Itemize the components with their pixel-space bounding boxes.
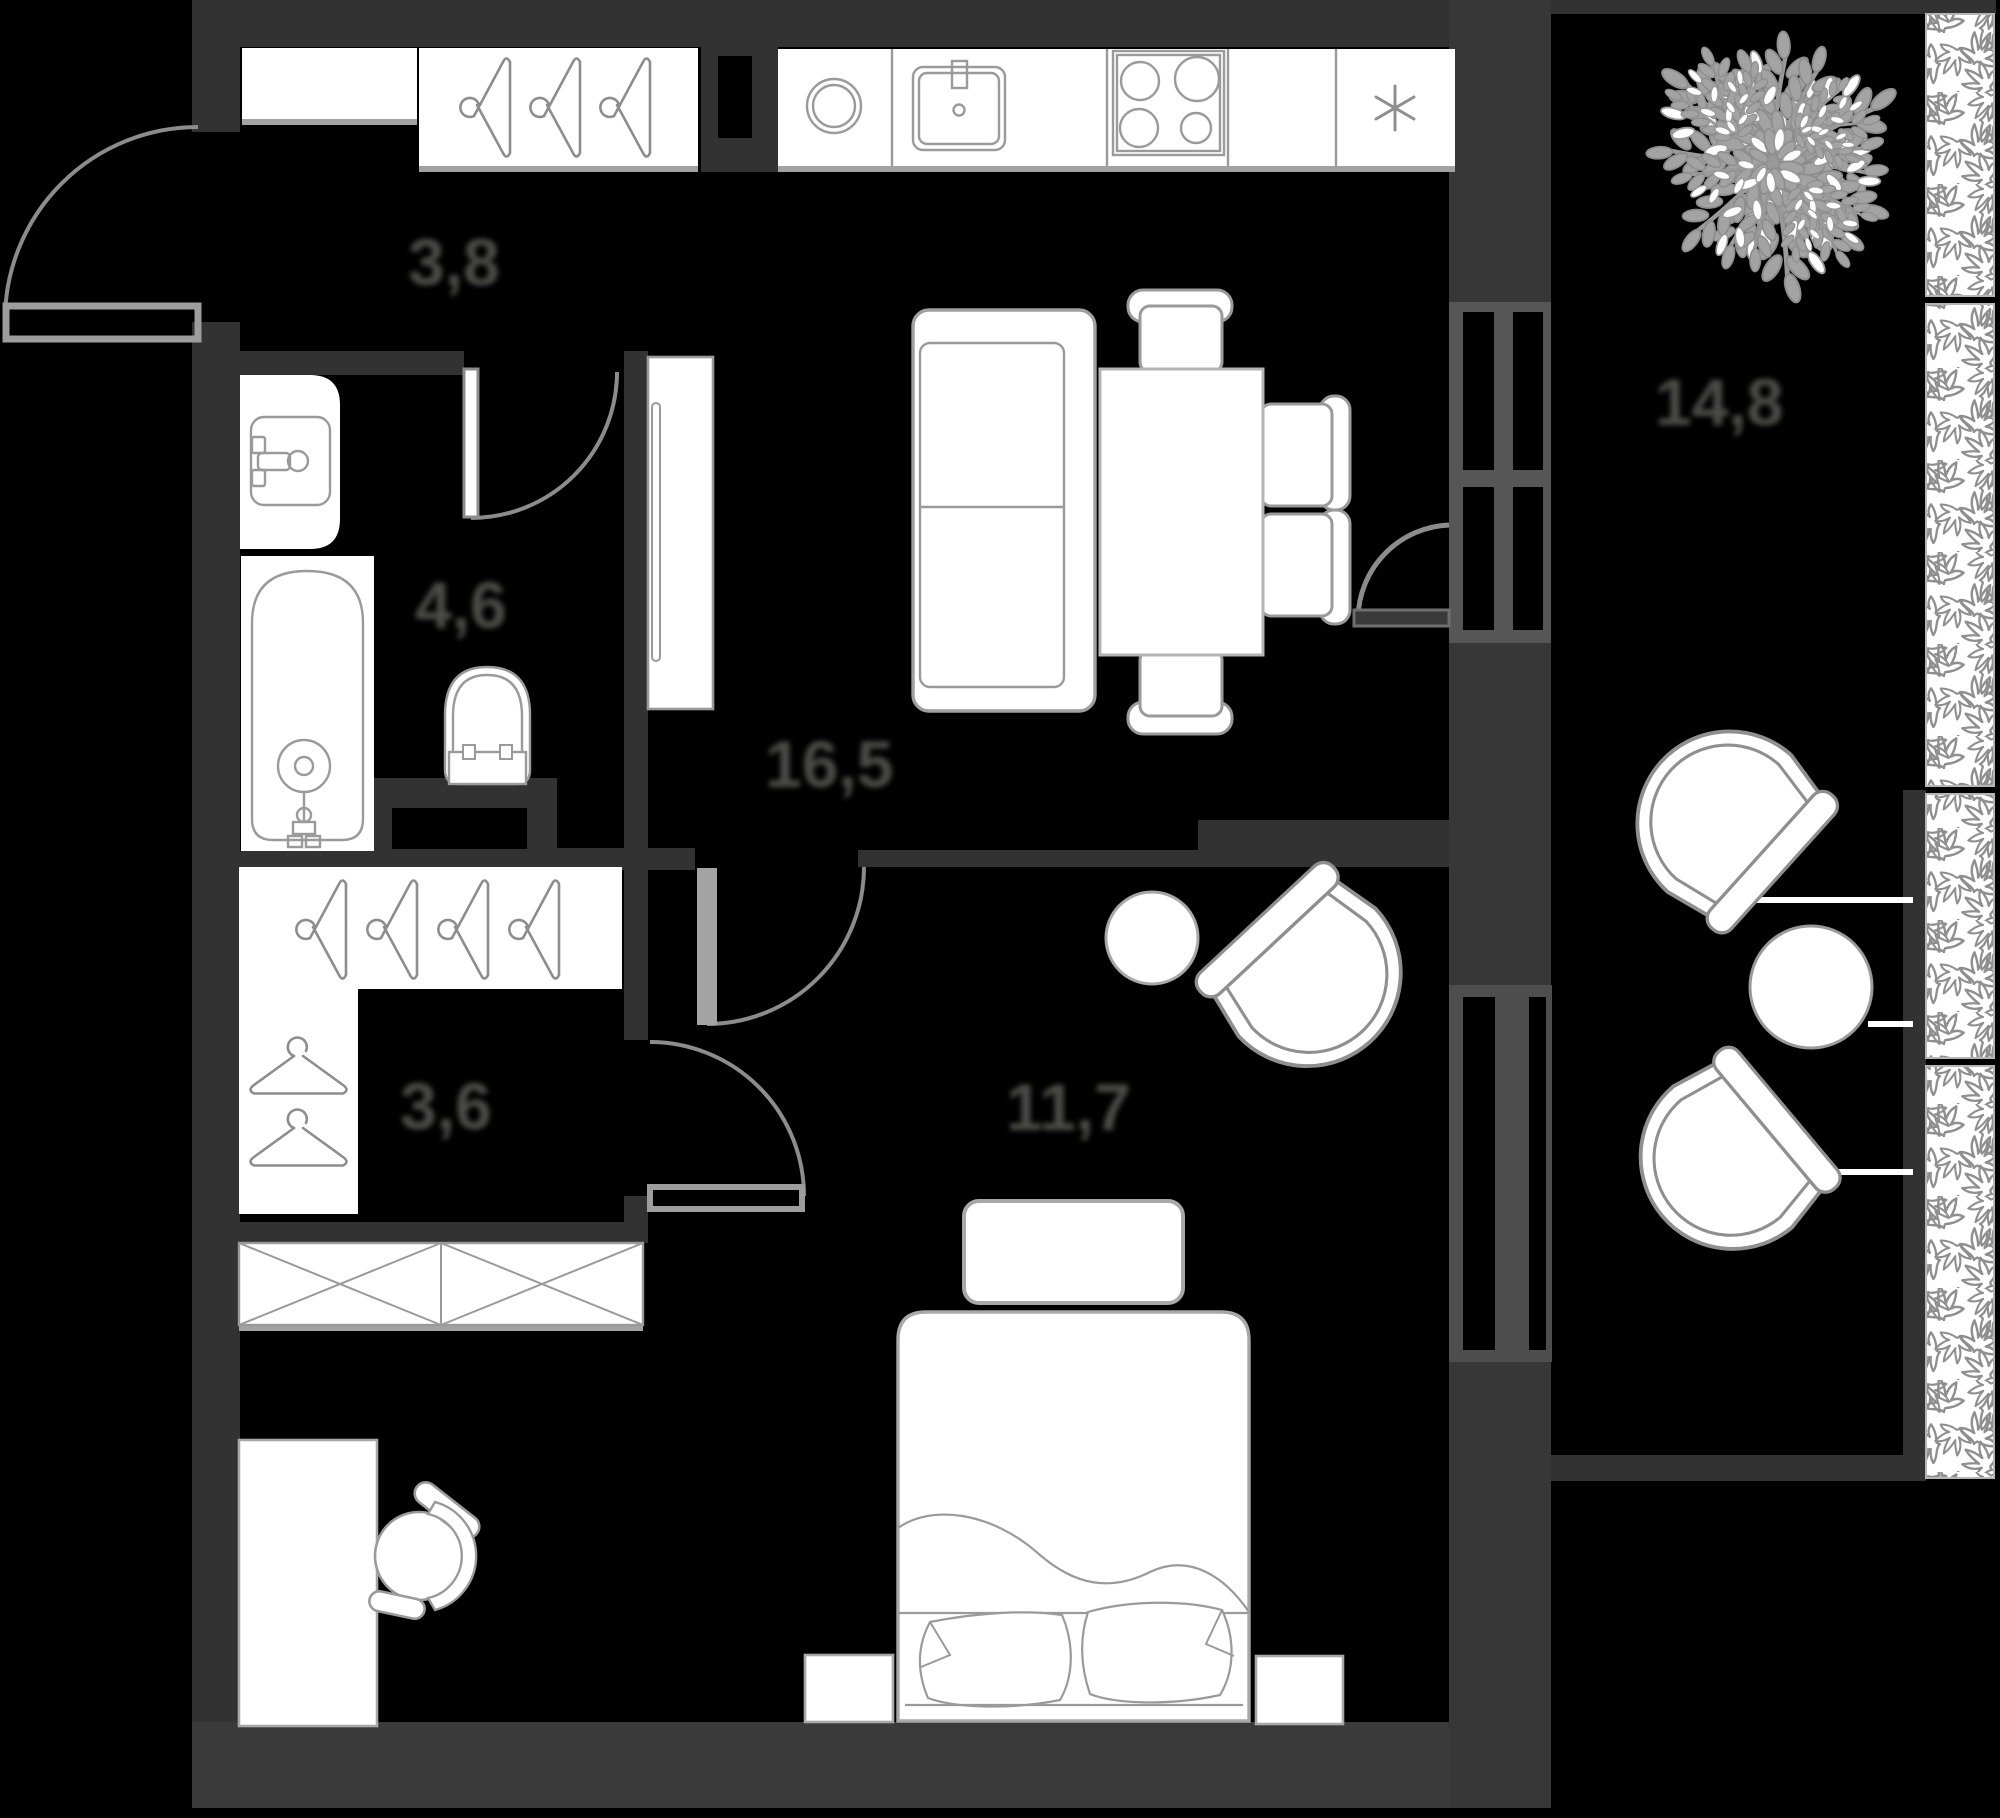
svg-text:3,6: 3,6: [400, 1069, 492, 1143]
svg-text:14,8: 14,8: [1655, 365, 1783, 439]
svg-text:3,8: 3,8: [408, 225, 500, 299]
svg-text:4,6: 4,6: [415, 568, 507, 642]
svg-text:11,7: 11,7: [1006, 1070, 1131, 1144]
svg-text:16,5: 16,5: [765, 727, 893, 801]
